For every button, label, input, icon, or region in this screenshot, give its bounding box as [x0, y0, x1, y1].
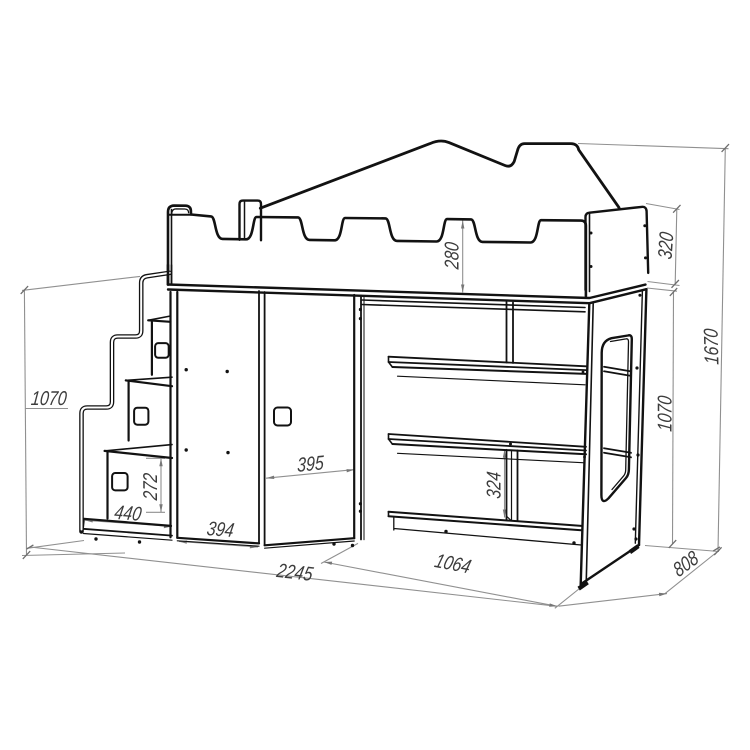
svg-text:1070: 1070	[654, 395, 676, 433]
svg-text:1670: 1670	[700, 328, 723, 365]
svg-text:1070: 1070	[30, 388, 68, 410]
svg-text:394: 394	[205, 518, 236, 542]
svg-text:272: 272	[139, 472, 161, 502]
svg-text:280: 280	[441, 241, 463, 271]
svg-text:2245: 2245	[274, 560, 316, 586]
svg-text:395: 395	[297, 451, 325, 476]
svg-text:320: 320	[654, 230, 678, 260]
svg-text:324: 324	[483, 471, 505, 500]
